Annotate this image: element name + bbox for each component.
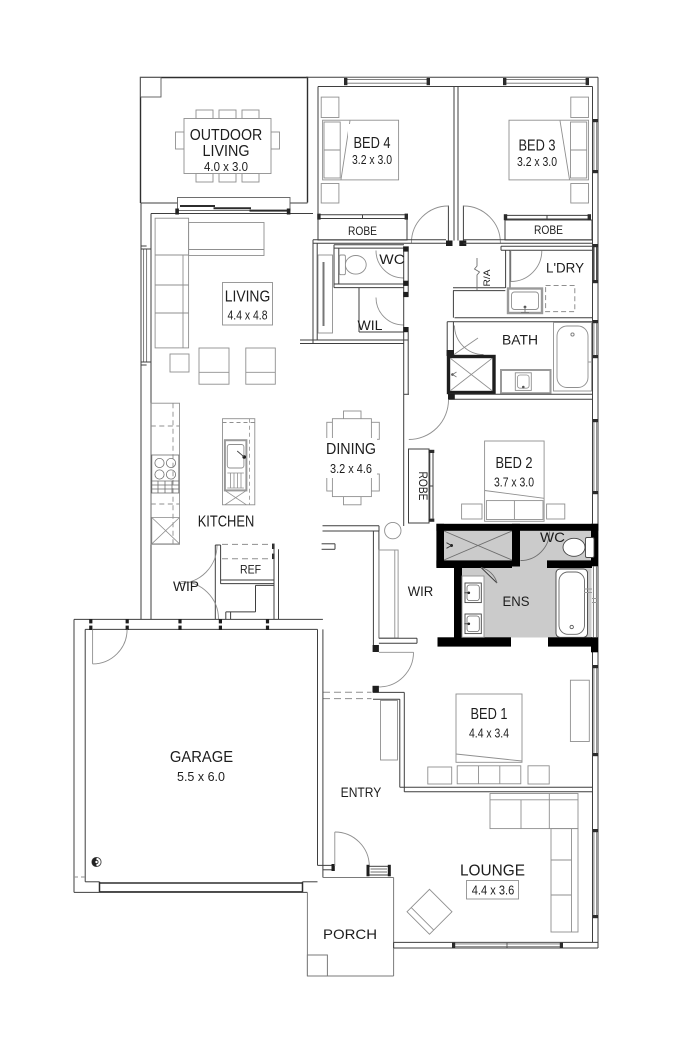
svg-text:ROBE: ROBE: [416, 472, 428, 501]
svg-text:GARAGE: GARAGE: [170, 749, 233, 766]
svg-text:R/A: R/A: [482, 269, 493, 287]
svg-text:ROBE: ROBE: [534, 225, 563, 237]
svg-text:KITCHEN: KITCHEN: [198, 514, 255, 531]
svg-text:ROBE: ROBE: [348, 226, 377, 238]
svg-text:4.4 x 3.6: 4.4 x 3.6: [472, 883, 515, 898]
svg-text:BED 2: BED 2: [496, 455, 533, 472]
svg-text:4.4 x 3.4: 4.4 x 3.4: [469, 726, 509, 741]
svg-text:3.7 x 3.0: 3.7 x 3.0: [494, 475, 534, 490]
svg-text:WC: WC: [379, 251, 405, 267]
svg-text:BATH: BATH: [502, 332, 538, 348]
svg-text:OUTDOOR: OUTDOOR: [190, 127, 263, 144]
svg-text:LOUNGE: LOUNGE: [460, 862, 525, 879]
svg-text:3.2 x 3.0: 3.2 x 3.0: [352, 152, 392, 167]
svg-text:3.2 x 3.0: 3.2 x 3.0: [517, 154, 557, 169]
svg-text:ENS: ENS: [503, 593, 530, 609]
svg-text:WIL: WIL: [358, 317, 383, 333]
svg-text:DINING: DINING: [326, 441, 376, 458]
svg-text:L'DRY: L'DRY: [546, 260, 585, 276]
svg-text:4.4 x 4.8: 4.4 x 4.8: [228, 308, 268, 323]
svg-text:4.0 x 3.0: 4.0 x 3.0: [204, 159, 248, 174]
svg-text:REF: REF: [240, 565, 261, 577]
svg-text:BED 1: BED 1: [471, 706, 508, 723]
svg-text:ENTRY: ENTRY: [341, 784, 382, 800]
svg-text:LIVING: LIVING: [203, 143, 250, 160]
svg-text:WIP: WIP: [173, 578, 199, 594]
svg-text:PORCH: PORCH: [323, 926, 377, 942]
svg-text:WIR: WIR: [408, 583, 434, 599]
svg-text:WC: WC: [540, 529, 565, 545]
svg-text:3.2 x 4.6: 3.2 x 4.6: [330, 461, 372, 476]
svg-text:BED 3: BED 3: [519, 137, 556, 154]
svg-text:BED 4: BED 4: [354, 135, 391, 152]
svg-text:LIVING: LIVING: [225, 288, 271, 305]
svg-text:5.5 x 6.0: 5.5 x 6.0: [177, 769, 225, 784]
